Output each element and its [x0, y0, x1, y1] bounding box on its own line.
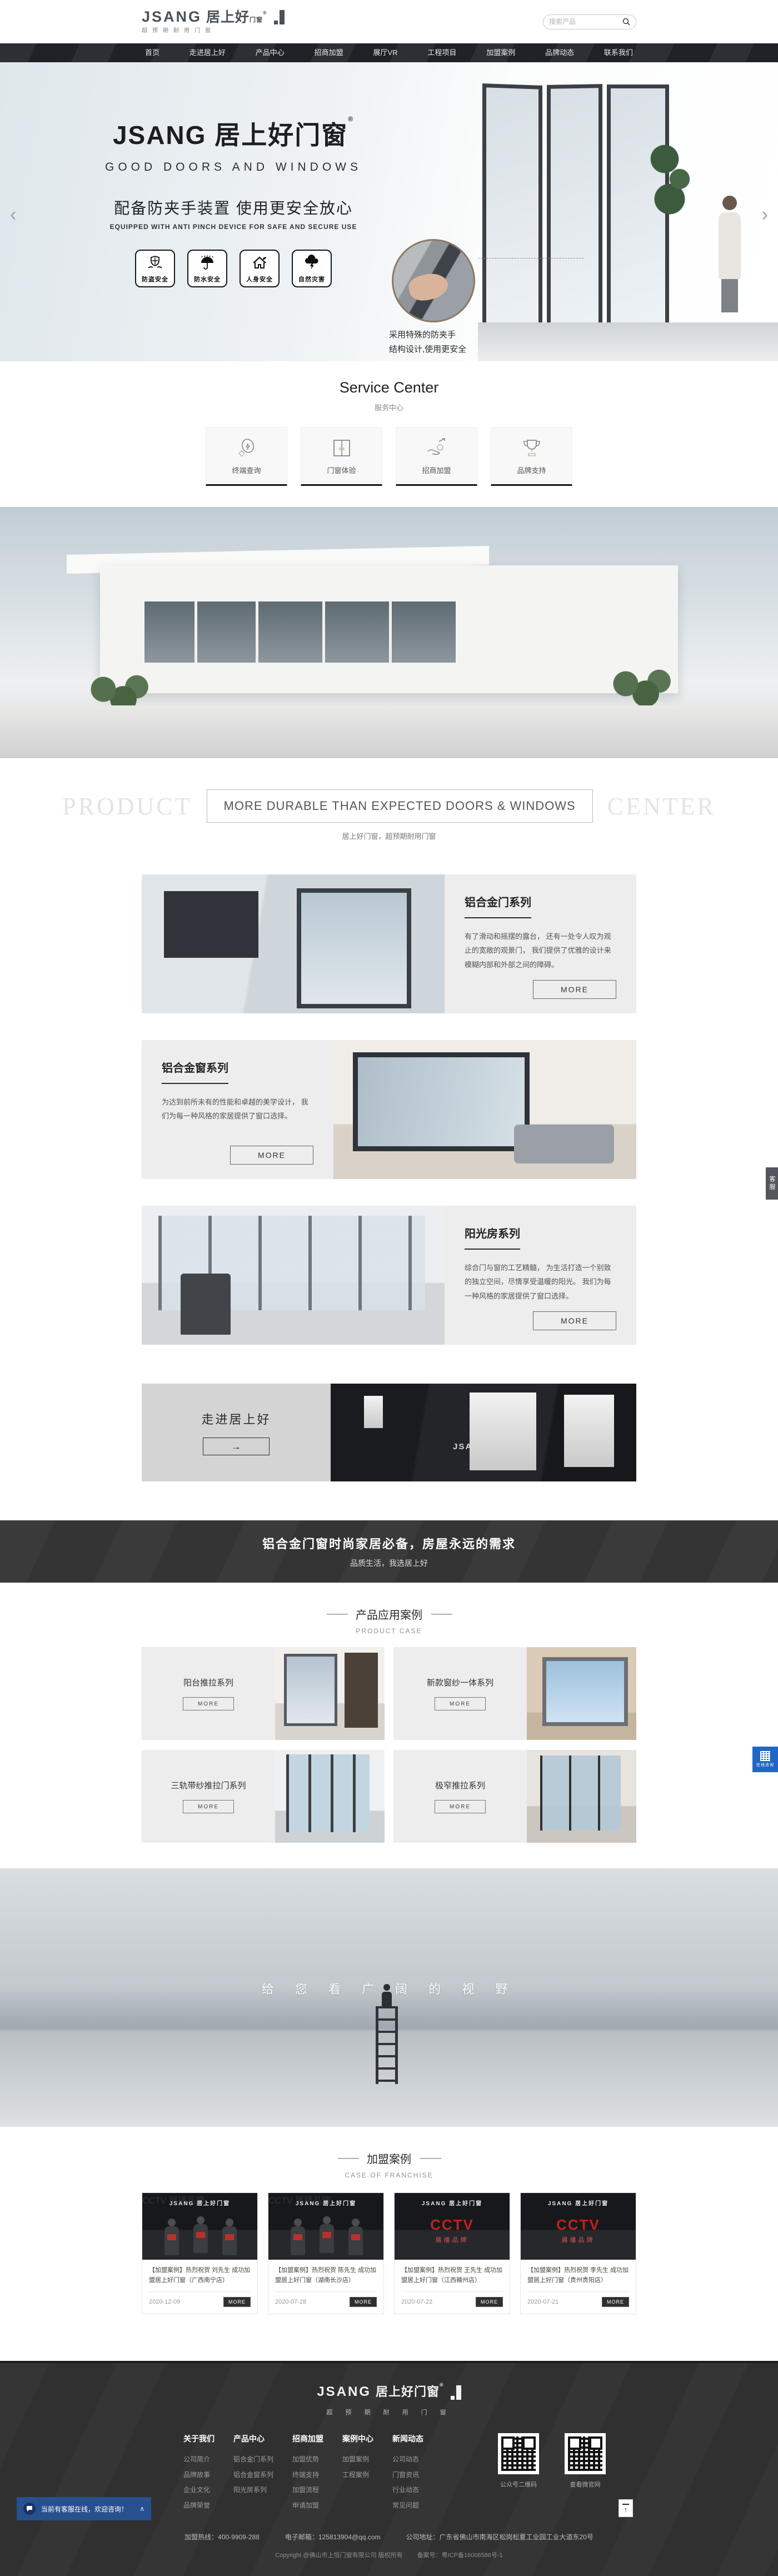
hero-banner: JSANG 居上好门窗® GOOD DOORS AND WINDOWS 配备防夹… — [0, 62, 778, 361]
news-date: 2020-07-22 — [401, 2299, 432, 2305]
product-case-section: —— 产品应用案例 —— PRODUCT CASE 阳台推拉系列 MORE 新款… — [0, 1583, 778, 1843]
top-bar: JSANG 居上好门窗® 超预期耐用门窗 — [0, 0, 778, 43]
footer-column-title: 新闻动态 — [392, 2433, 423, 2444]
chat-bubble-icon — [23, 2503, 36, 2515]
product-title: 阳光房系列 — [465, 1225, 520, 1250]
service-subtitle: 服务中心 — [0, 402, 778, 412]
product-case-title: 产品应用案例 — [356, 1606, 422, 1622]
footer-qrcode: 查看微官网 — [565, 2433, 606, 2513]
hero-subtitle-en: GOOD DOORS AND WINDOWS — [50, 161, 417, 174]
footer-link[interactable]: 常见问题 — [392, 2498, 423, 2514]
news-title: 【加盟案例】热烈祝贺 王先生 成功加盟居上好门窗（江西赣州店） — [401, 2265, 503, 2286]
franchise-section: —— 加盟案例 —— CASE OF FRANCHISE JSANG 居上好门窗… — [0, 2127, 778, 2361]
footer-link[interactable]: 品牌荣誉 — [183, 2498, 215, 2514]
news-date: 2020-07-21 — [527, 2299, 558, 2305]
footer-column: 新闻动态 公司动态门窗资讯行业动态常见问题 — [392, 2433, 423, 2513]
footer-link[interactable]: 阳光房系列 — [233, 2483, 273, 2498]
more-button[interactable]: MORE — [533, 1311, 616, 1330]
case-card-image — [527, 1647, 636, 1740]
inset-caption: 采用特殊的防夹手 结构设计,使用更安全 — [389, 328, 466, 356]
footer-logo: JSANG 居上好门窗® — [0, 2382, 778, 2400]
footer-link[interactable]: 公司动态 — [392, 2452, 423, 2468]
footer-link[interactable]: 工程案例 — [342, 2468, 373, 2483]
footer-link[interactable]: 铝合金窗系列 — [233, 2468, 273, 2483]
case-card[interactable]: 阳台推拉系列 MORE — [142, 1647, 385, 1740]
nav-item[interactable]: 联系我们 — [601, 43, 636, 62]
product-center-title: MORE DURABLE THAN EXPECTED DOORS & WINDO… — [207, 789, 593, 823]
news-card-photo: JSANG 居上好门窗 CCTV 展播品牌 — [142, 2193, 257, 2260]
chat-online-bar[interactable]: 当前有客服在线，欢迎咨询！ ∧ — [17, 2497, 151, 2520]
footer: JSANG 居上好门窗® 超 预 期 耐 用 门 窗 关于我们 公司简介品牌故事… — [0, 2361, 778, 2576]
hero-badges: 防盗安全 防水安全 人身安全 自然灾害 — [50, 250, 417, 287]
footer-qrcode: 公众号二维码 — [498, 2433, 539, 2513]
footer-email: 电子邮箱：125813904@qq.com — [285, 2532, 381, 2542]
logo-cn-text: 居上好门窗® — [206, 11, 267, 24]
location-search-icon — [236, 437, 258, 459]
hero-slogan: 配备防夹手装置 使用更安全放心 — [50, 196, 417, 218]
case-card-title: 三轨带纱推拉门系列 — [171, 1779, 246, 1791]
window-icon — [331, 437, 353, 459]
hero-title: JSANG 居上好门窗® — [50, 115, 417, 152]
service-center-section: Service Center 服务中心 终端查询 门窗体验 招商加盟 品牌支持 — [0, 361, 778, 507]
footer-tagline: 超 预 期 耐 用 门 窗 — [0, 2408, 778, 2416]
footer-link[interactable]: 门窗资讯 — [392, 2468, 423, 2483]
badge-natural-disaster: 自然灾害 — [292, 250, 332, 287]
footer-column: 关于我们 公司简介品牌故事企业文化品牌荣誉 — [183, 2433, 215, 2513]
nav-item[interactable]: 工程项目 — [424, 43, 460, 62]
mini-qr-icon — [760, 1751, 770, 1761]
more-button[interactable]: MORE — [533, 980, 616, 999]
news-more-button[interactable]: MORE — [223, 2297, 251, 2307]
badge-personal-safety: 人身安全 — [240, 250, 280, 287]
footer-link[interactable]: 行业动态 — [392, 2483, 423, 2498]
anti-pinch-inset-photo — [392, 239, 475, 322]
news-more-button[interactable]: MORE — [602, 2297, 629, 2307]
shield-hands-icon — [147, 255, 163, 271]
footer-link[interactable]: 申请加盟 — [292, 2498, 323, 2514]
product-case-subtitle: PRODUCT CASE — [0, 1627, 778, 1635]
side-service-tab[interactable]: 客服 — [766, 1167, 778, 1200]
product-title: 铝合金窗系列 — [162, 1059, 228, 1084]
case-card[interactable]: 新款窗纱一体系列 MORE — [393, 1647, 636, 1740]
news-title: 【加盟案例】热烈祝贺 刘先生 成功加盟居上好门窗（广西南宁店） — [149, 2265, 251, 2286]
footer-icp: 备案号：粤ICP备16006586号-1 — [417, 2550, 503, 2559]
footer-link[interactable]: 加盟优势 — [292, 2452, 323, 2468]
footer-column-title: 案例中心 — [342, 2433, 373, 2444]
watermark-product: PRODUCT — [62, 792, 192, 820]
footer-column-title: 招商加盟 — [292, 2433, 323, 2444]
footer-column: 案例中心 加盟案例工程案例 — [342, 2433, 373, 2513]
hand-coin-growth-icon — [426, 437, 448, 459]
news-card-photo: JSANG 居上好门窗 CCTV 展播品牌 — [395, 2193, 510, 2260]
ladder-figure — [376, 2006, 398, 2084]
news-card-photo: JSANG 居上好门窗 CCTV 展播品牌 — [268, 2193, 383, 2260]
footer-column: 招商加盟 加盟优势终端支持加盟流程申请加盟 — [292, 2433, 323, 2513]
case-more-button[interactable]: MORE — [183, 1800, 234, 1813]
qr-code-image — [565, 2433, 606, 2474]
service-title: Service Center — [0, 379, 778, 396]
footer-column-title: 产品中心 — [233, 2433, 273, 2444]
trophy-icon — [521, 437, 543, 459]
inset-pointer-line — [478, 258, 583, 258]
product-title: 铝合金门系列 — [465, 893, 531, 918]
slogan-line1: 铝合金门窗时尚家居必备，房屋永远的需求 — [262, 1534, 516, 1552]
main-nav: 首页走进居上好产品中心招商加盟展厅VR工程项目加盟案例品牌动态联系我们 — [0, 43, 778, 62]
plant-decor — [645, 129, 695, 229]
product-image — [142, 1206, 445, 1345]
child-figure — [717, 196, 742, 315]
case-card[interactable]: 极窄推拉系列 MORE — [393, 1750, 636, 1843]
case-card-image — [275, 1750, 385, 1843]
search-box[interactable] — [543, 14, 636, 29]
nav-item[interactable]: 加盟案例 — [483, 43, 518, 62]
vision-banner: 给 您 看 广 阔 的 视 野 — [0, 1868, 778, 2127]
logo-en-text: JSANG — [142, 9, 202, 24]
product-center-subtitle: 居上好门窗，超预期耐用门窗 — [0, 831, 778, 841]
qr-label: 查看微官网 — [565, 2480, 606, 2489]
footer-link[interactable]: 终端支持 — [292, 2468, 323, 2483]
footer-copyright: Copyright @佛山市上恒门窗有限公司 版权所有 — [275, 2550, 402, 2559]
nav-item[interactable]: 首页 — [142, 43, 163, 62]
footer-link[interactable]: 企业文化 — [183, 2483, 215, 2498]
footer-address: 公司地址：广东省佛山市南海区松岗松夏工业园工业大道东20号 — [406, 2532, 593, 2542]
news-card[interactable]: JSANG 居上好门窗 CCTV 展播品牌 【加盟案例】热烈祝贺 李先生 成功加… — [520, 2192, 636, 2314]
badge-anti-theft: 防盗安全 — [135, 250, 175, 287]
news-card[interactable]: JSANG 居上好门窗 CCTV 展播品牌 【加盟案例】热烈祝贺 刘先生 成功加… — [142, 2192, 258, 2314]
footer-column-title: 关于我们 — [183, 2433, 215, 2444]
case-card[interactable]: 三轨带纱推拉门系列 MORE — [142, 1750, 385, 1843]
slogan-line2: 品质生活，我选居上好 — [350, 1558, 428, 1569]
case-card-image — [275, 1647, 385, 1740]
house-icon — [251, 255, 268, 271]
slogan-band: 铝合金门窗时尚家居必备，房屋永远的需求 品质生活，我选居上好 — [0, 1520, 778, 1583]
badge-waterproof: 防水安全 — [187, 250, 227, 287]
showroom-photo: JSANG 居上好门窗 — [331, 1384, 636, 1481]
hero-slogan-en: EQUIPPED WITH ANTI PINCH DEVICE FOR SAFE… — [50, 223, 417, 231]
news-card[interactable]: JSANG 居上好门窗 CCTV 展播品牌 【加盟案例】热烈祝贺 陈先生 成功加… — [268, 2192, 384, 2314]
news-more-button[interactable]: MORE — [476, 2297, 503, 2307]
storm-cloud-icon — [303, 255, 320, 271]
online-consult-button[interactable]: 在线咨询 — [752, 1747, 778, 1772]
footer-link[interactable]: 铝合金门系列 — [233, 2452, 273, 2468]
qr-code-image — [498, 2433, 539, 2474]
footer-column: 产品中心 铝合金门系列铝合金窗系列阳光房系列 — [233, 2433, 273, 2513]
logo-tagline: 超预期耐用门窗 — [142, 28, 285, 34]
back-to-top-button[interactable]: ↑ — [619, 2499, 633, 2517]
product-block: 铝合金窗系列 为达到前所未有的性能和卓越的美学设计， 我们为每一种风格的家居提供… — [142, 1040, 636, 1179]
logo-bars-icon — [274, 10, 285, 24]
product-image — [142, 874, 445, 1013]
case-card-title: 新款窗纱一体系列 — [427, 1677, 493, 1688]
nav-item[interactable]: 招商加盟 — [311, 43, 347, 62]
chat-collapse-icon[interactable]: ∧ — [139, 2505, 144, 2513]
news-title: 【加盟案例】热烈祝贺 李先生 成功加盟居上好门窗（贵州贵阳店） — [527, 2265, 629, 2286]
product-block: 阳光房系列 综合门与窗的工艺精髓， 为生活打造一个别致的独立空间，尽情享受温暖的… — [142, 1206, 636, 1345]
product-block: 铝合金门系列 有了滑动和摇摆的露台， 还有一处令人叹为观止的宽敞的观景门， 我们… — [142, 874, 636, 1013]
service-card-join-us[interactable]: 招商加盟 — [396, 427, 477, 486]
nav-item[interactable]: 展厅VR — [370, 43, 401, 62]
news-date: 2020-12-09 — [149, 2299, 180, 2305]
footer-link[interactable]: 公司简介 — [183, 2452, 215, 2468]
carousel-next-button[interactable]: › — [762, 204, 768, 226]
footer-hotline: 加盟热线：400-9909-288 — [184, 2532, 260, 2542]
search-icon[interactable] — [622, 18, 630, 26]
product-description: 有了滑动和摇摆的露台， 还有一处令人叹为观止的宽敞的观景门， 我们提供了优雅的设… — [465, 929, 616, 972]
nav-item[interactable]: 品牌动态 — [542, 43, 577, 62]
hero-photo — [478, 62, 778, 361]
umbrella-icon — [199, 255, 216, 271]
case-more-button[interactable]: MORE — [435, 1800, 486, 1813]
service-card-brand-support[interactable]: 品牌支持 — [491, 427, 572, 486]
architecture-photo — [0, 507, 778, 758]
case-more-button[interactable]: MORE — [435, 1697, 486, 1710]
service-card-terminal-query[interactable]: 终端查询 — [206, 427, 287, 486]
product-description: 为达到前所未有的性能和卓越的美学设计， 我们为每一种风格的家居提供了窗口选择。 — [162, 1095, 313, 1123]
news-card[interactable]: JSANG 居上好门窗 CCTV 展播品牌 【加盟案例】热烈祝贺 王先生 成功加… — [394, 2192, 510, 2314]
showroom-banner: 走进居上好 → JSANG 居上好门窗 — [142, 1384, 636, 1481]
service-card-window-experience[interactable]: 门窗体验 — [301, 427, 382, 486]
carousel-prev-button[interactable]: ‹ — [10, 204, 16, 226]
case-card-title: 极窄推拉系列 — [435, 1779, 485, 1791]
site-logo[interactable]: JSANG 居上好门窗® 超预期耐用门窗 — [142, 9, 285, 34]
nav-item[interactable]: 走进居上好 — [186, 43, 229, 62]
qr-label: 公众号二维码 — [498, 2480, 539, 2489]
more-button[interactable]: MORE — [230, 1146, 313, 1165]
case-card-title: 阳台推拉系列 — [183, 1677, 233, 1688]
watermark-center: CENTER — [607, 792, 716, 820]
news-card-photo: JSANG 居上好门窗 CCTV 展播品牌 — [521, 2193, 636, 2260]
nav-item[interactable]: 产品中心 — [252, 43, 288, 62]
news-date: 2020-07-28 — [275, 2299, 306, 2305]
footer-link[interactable]: 加盟流程 — [292, 2483, 323, 2498]
product-description: 综合门与窗的工艺精髓， 为生活打造一个别致的独立空间，尽情享受温暖的阳光。 我们… — [465, 1261, 616, 1303]
vision-text: 给 您 看 广 阔 的 视 野 — [0, 1980, 778, 1997]
franchise-title: 加盟案例 — [367, 2150, 411, 2166]
news-title: 【加盟案例】热烈祝贺 陈先生 成功加盟居上好门窗（湖南长沙店） — [275, 2265, 377, 2286]
footer-link[interactable]: 加盟案例 — [342, 2452, 373, 2468]
showroom-arrow-button[interactable]: → — [203, 1438, 270, 1455]
news-more-button[interactable]: MORE — [350, 2297, 377, 2307]
case-card-image — [527, 1750, 636, 1843]
product-center-section: PRODUCT MORE DURABLE THAN EXPECTED DOORS… — [0, 758, 778, 1481]
showroom-brand-text: JSANG 居上好门窗 — [453, 1440, 538, 1452]
showroom-title: 走进居上好 — [201, 1410, 271, 1428]
search-input[interactable] — [549, 18, 619, 26]
franchise-subtitle: CASE OF FRANCHISE — [0, 2171, 778, 2179]
footer-link[interactable]: 品牌故事 — [183, 2468, 215, 2483]
case-more-button[interactable]: MORE — [183, 1697, 234, 1710]
product-image — [333, 1040, 636, 1179]
footer-logo-bars-icon — [451, 2385, 461, 2400]
